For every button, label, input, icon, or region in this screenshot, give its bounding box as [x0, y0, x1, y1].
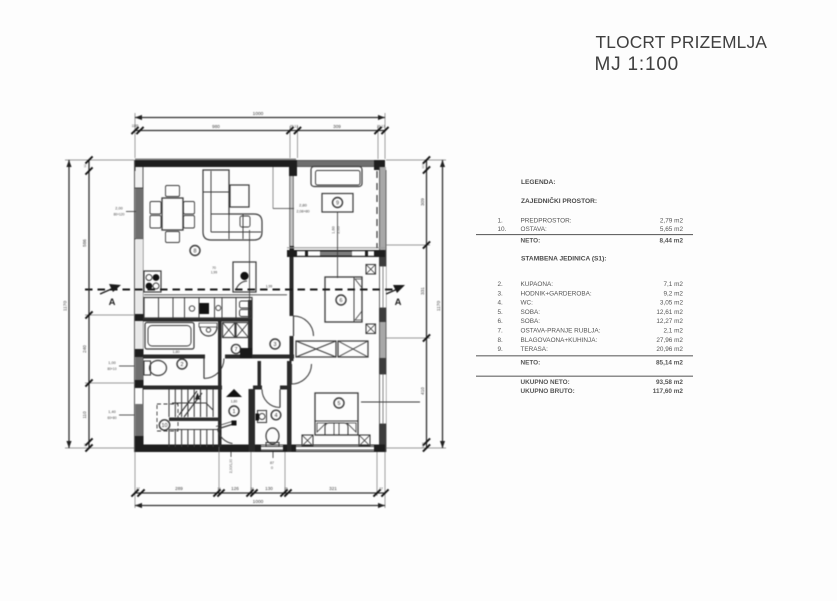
- svg-text:110: 110: [82, 411, 87, 419]
- svg-text:PREDPROSTOR:: PREDPROSTOR:: [521, 218, 572, 225]
- svg-text:309: 309: [420, 198, 425, 206]
- svg-text:2,1 m2: 2,1 m2: [663, 328, 683, 335]
- svg-text:93,58 m2: 93,58 m2: [656, 379, 683, 386]
- svg-text:7: 7: [235, 347, 238, 353]
- svg-text:331: 331: [420, 287, 425, 295]
- svg-text:OSTAVA-PRANJE RUBLJA:: OSTAVA-PRANJE RUBLJA:: [521, 328, 601, 335]
- svg-text:85,14 m2: 85,14 m2: [656, 360, 683, 367]
- svg-text:SOBA:: SOBA:: [521, 309, 541, 316]
- svg-text:BLAGOVAONA+KUHINJA:: BLAGOVAONA+KUHINJA:: [521, 337, 598, 344]
- svg-text:1185: 1185: [132, 124, 139, 128]
- svg-text:12,5: 12,5: [421, 442, 425, 448]
- svg-text:MJ 1:100: MJ 1:100: [595, 54, 680, 75]
- svg-text:LEGENDA:: LEGENDA:: [521, 179, 555, 186]
- svg-text:ZAJEDNIČKI PROSTOR:: ZAJEDNIČKI PROSTOR:: [521, 196, 597, 205]
- svg-text:8: 8: [194, 249, 197, 255]
- svg-text:2: 2: [181, 362, 184, 368]
- svg-text:321: 321: [329, 486, 337, 491]
- svg-text:3,05 m2: 3,05 m2: [660, 300, 684, 307]
- svg-text:1,80: 1,80: [173, 350, 180, 354]
- svg-text:240: 240: [82, 345, 87, 353]
- svg-text:80+120: 80+120: [114, 213, 125, 217]
- svg-text:12: 12: [83, 164, 87, 168]
- svg-text:5: 5: [338, 401, 341, 407]
- svg-text:9.: 9.: [498, 346, 504, 353]
- svg-text:2.: 2.: [498, 281, 504, 288]
- svg-text:27,96 m2: 27,96 m2: [656, 337, 683, 344]
- svg-text:1,99: 1,99: [266, 285, 273, 289]
- svg-text:60+80: 60+80: [108, 416, 117, 420]
- svg-text:29 13: 29 13: [290, 125, 298, 129]
- svg-text:8,44 m2: 8,44 m2: [660, 238, 684, 245]
- svg-text:TERASA:: TERASA:: [521, 346, 549, 353]
- svg-text:8.: 8.: [498, 337, 504, 344]
- svg-text:6: 6: [340, 298, 343, 304]
- svg-text:126: 126: [231, 486, 239, 491]
- svg-text:UKUPNO BRUTO:: UKUPNO BRUTO:: [521, 388, 575, 395]
- svg-text:20,96 m2: 20,96 m2: [656, 346, 683, 353]
- svg-text:4: 4: [275, 413, 278, 419]
- svg-text:NETO:: NETO:: [521, 360, 541, 367]
- svg-text:27: 27: [379, 487, 383, 491]
- svg-text:1000: 1000: [253, 111, 264, 117]
- svg-text:2,08+80: 2,08+80: [296, 210, 309, 214]
- svg-text:12,61 m2: 12,61 m2: [656, 309, 683, 316]
- svg-text:117,60 m2: 117,60 m2: [653, 388, 684, 395]
- svg-text:12: 12: [83, 443, 87, 447]
- svg-text:20: 20: [250, 487, 254, 491]
- svg-text:289: 289: [175, 486, 183, 491]
- svg-text:2,00: 2,00: [115, 207, 122, 211]
- svg-text:10: 10: [162, 423, 168, 429]
- svg-text:3: 3: [274, 342, 277, 348]
- svg-text:A: A: [395, 297, 402, 308]
- svg-text:27: 27: [136, 487, 140, 491]
- svg-text:UKUPNO NETO:: UKUPNO NETO:: [521, 379, 570, 386]
- svg-text:9: 9: [336, 201, 339, 207]
- svg-text:7,1 m2: 7,1 m2: [663, 281, 683, 288]
- svg-text:70: 70: [212, 266, 216, 270]
- svg-text:3.: 3.: [498, 290, 504, 297]
- svg-text:586: 586: [82, 239, 87, 247]
- svg-text:1,60: 1,60: [332, 226, 336, 233]
- svg-text:1170: 1170: [63, 301, 69, 312]
- svg-text:12,5: 12,5: [421, 163, 425, 169]
- svg-text:1000: 1000: [253, 499, 264, 505]
- svg-text:1,40: 1,40: [108, 410, 115, 414]
- svg-text:10.: 10.: [498, 226, 507, 233]
- svg-text:1,00: 1,00: [108, 361, 115, 365]
- svg-text:STAMBENA JEDINICA (S1):: STAMBENA JEDINICA (S1):: [521, 256, 606, 263]
- svg-text:309: 309: [333, 124, 341, 129]
- svg-text:SOBA:: SOBA:: [521, 318, 541, 325]
- svg-text:130: 130: [265, 486, 273, 491]
- svg-text:NETO:: NETO:: [521, 238, 541, 245]
- svg-text:2,79 m2: 2,79 m2: [660, 218, 684, 225]
- svg-text:TLOCRT PRIZEMLJA: TLOCRT PRIZEMLJA: [596, 32, 768, 52]
- svg-text:12,27 m2: 12,27 m2: [656, 318, 683, 325]
- svg-text:WC:: WC:: [521, 300, 534, 307]
- svg-text:410: 410: [420, 387, 425, 395]
- svg-text:87: 87: [270, 461, 274, 465]
- svg-text:9,2 m2: 9,2 m2: [663, 290, 683, 297]
- svg-text:1,99: 1,99: [211, 271, 217, 275]
- svg-text:0: 0: [271, 466, 273, 470]
- svg-text:2,05: 2,05: [337, 226, 341, 233]
- svg-text:5.: 5.: [498, 309, 504, 316]
- svg-text:HODNIK+GARDEROBA:: HODNIK+GARDEROBA:: [521, 290, 592, 297]
- svg-text:1.: 1.: [498, 218, 504, 225]
- svg-text:29 13: 29 13: [377, 125, 385, 129]
- svg-text:1,80: 1,80: [231, 400, 238, 404]
- svg-text:25: 25: [284, 487, 288, 491]
- svg-text:A: A: [109, 297, 116, 308]
- svg-text:80+10: 80+10: [108, 367, 117, 371]
- svg-text:980: 980: [212, 124, 220, 129]
- svg-text:5,65 m2: 5,65 m2: [660, 226, 684, 233]
- svg-text:2,80: 2,80: [299, 203, 308, 208]
- svg-text:7.: 7.: [498, 328, 504, 335]
- svg-text:1170: 1170: [436, 301, 442, 312]
- svg-text:1: 1: [233, 409, 236, 415]
- svg-text:KUPAONA:: KUPAONA:: [521, 281, 554, 288]
- svg-text:4.: 4.: [498, 300, 504, 307]
- svg-text:OSTAVA:: OSTAVA:: [521, 226, 547, 233]
- svg-text:2,00/1,00: 2,00/1,00: [229, 459, 233, 473]
- svg-text:6.: 6.: [498, 318, 504, 325]
- svg-text:14: 14: [217, 487, 221, 491]
